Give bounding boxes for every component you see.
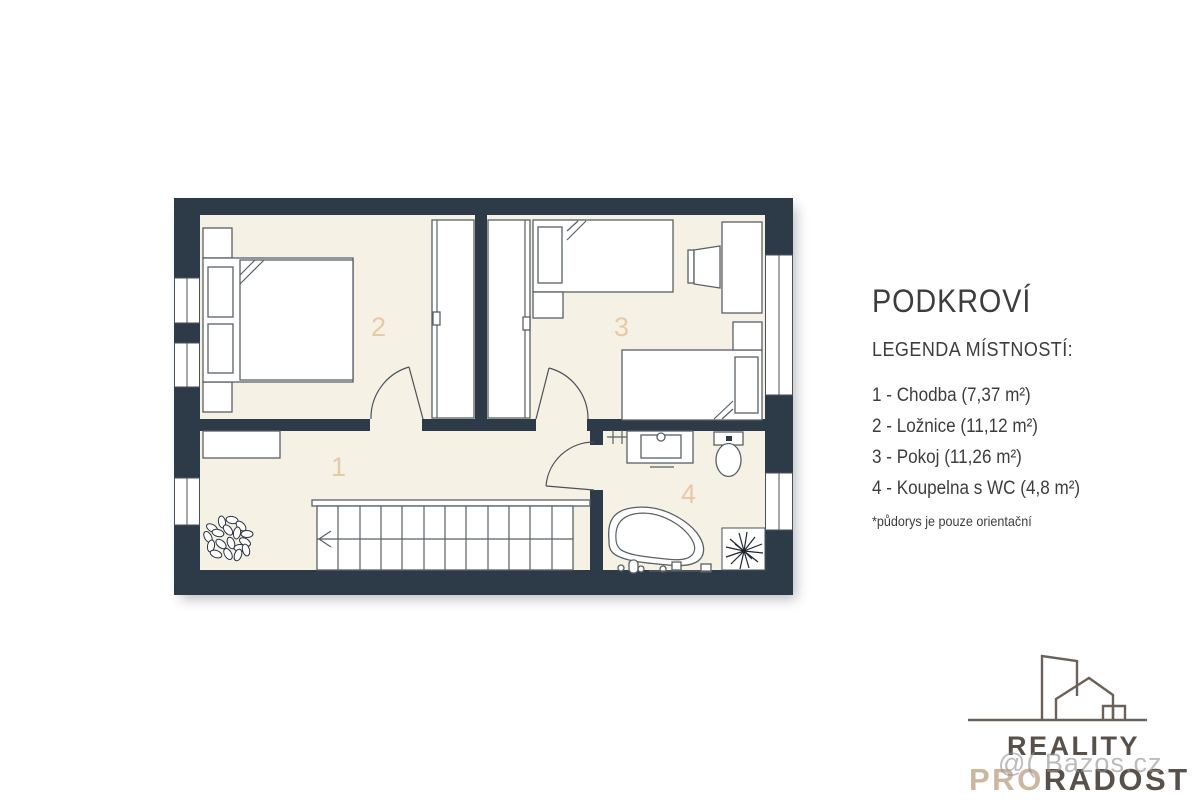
- single-bed-icon: [622, 350, 762, 420]
- toilet-icon: [714, 432, 743, 477]
- shelf-icon: [733, 322, 762, 350]
- room-number-bathroom: 4: [681, 479, 696, 509]
- window-icon: [175, 478, 200, 525]
- room-number-bedroom: 2: [371, 312, 386, 342]
- double-bed-icon: [203, 258, 353, 382]
- nightstand-icon: [203, 228, 232, 258]
- legend-subtitle: LEGENDA MÍSTNOSTÍ:: [872, 339, 1080, 362]
- legend-item-bedroom: 2 - Ložnice (11,12 m²): [872, 411, 1080, 442]
- legend-item-bathroom: 4 - Koupelna s WC (4,8 m²): [872, 473, 1080, 504]
- window-icon: [766, 255, 793, 395]
- window-icon: [175, 278, 200, 323]
- room-number-kids-room: 3: [614, 312, 629, 342]
- legend-item-hallway: 1 - Chodba (7,37 m²): [872, 380, 1080, 411]
- plan-title: PODKROVÍ: [872, 283, 1080, 320]
- room-number-hallway: 1: [331, 452, 346, 482]
- window-icon: [175, 343, 200, 387]
- plant-icon: [722, 528, 765, 570]
- chair-icon: [688, 246, 720, 288]
- legend-note: *půdorys je pouze orientační: [872, 513, 1080, 529]
- watermark: @( Bazos.cz: [998, 748, 1162, 779]
- legend-items: 1 - Chodba (7,37 m²) 2 - Ložnice (11,12 …: [872, 380, 1103, 504]
- stairs-icon: [312, 500, 590, 570]
- legend-item-kids-room: 3 - Pokoj (11,26 m²): [872, 442, 1080, 473]
- single-bed-icon: [533, 220, 673, 292]
- shelf-icon: [533, 292, 563, 318]
- wardrobe-icon: [432, 220, 474, 418]
- legend-panel: PODKROVÍ LEGENDA MÍSTNOSTÍ: 1 - Chodba (…: [872, 283, 1103, 529]
- cabinet-icon: [203, 431, 280, 458]
- sink-icon: [627, 431, 693, 467]
- page: 1 2 3 4 PODKROVÍ LEGENDA MÍSTNOSTÍ: 1 - …: [0, 0, 1200, 800]
- desk-icon: [722, 222, 762, 313]
- wardrobe-icon: [488, 220, 530, 418]
- nightstand-icon: [203, 382, 232, 412]
- window-icon: [766, 473, 793, 530]
- logo-skyline-icon: [955, 645, 1195, 730]
